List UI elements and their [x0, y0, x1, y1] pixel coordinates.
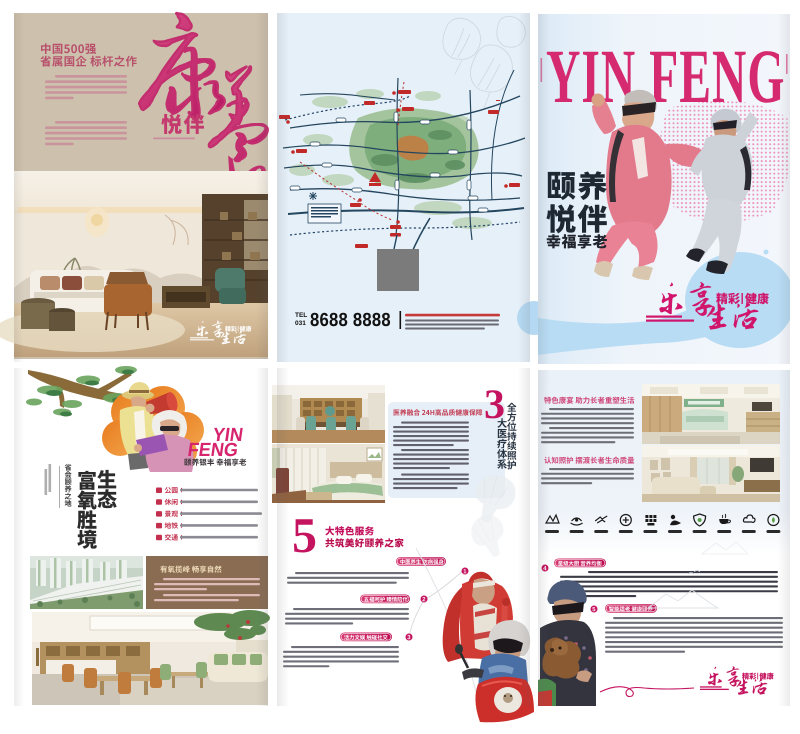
- svg-text:031: 031: [295, 320, 306, 327]
- svg-text:TEL: TEL: [295, 312, 307, 319]
